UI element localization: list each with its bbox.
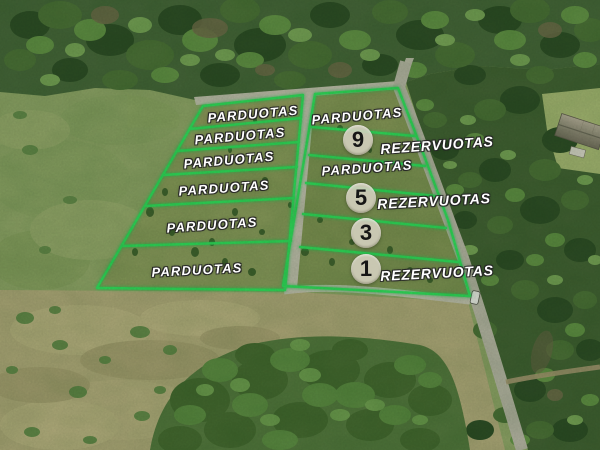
plot-label-sold: PARDUOTAS [321, 157, 413, 178]
plot-label-sold: PARDUOTAS [207, 103, 299, 126]
aerial-plot-map: PARDUOTAS PARDUOTAS PARDUOTAS PARDUOTAS … [0, 0, 600, 450]
plot-label-sold: PARDUOTAS [151, 260, 243, 280]
plot-label-sold: PARDUOTAS [194, 125, 286, 148]
plot-number-badge: 3 [351, 218, 381, 248]
plot-label-reserved: REZERVUOTAS [380, 133, 494, 157]
plot-label-reserved: REZERVUOTAS [377, 190, 491, 212]
plot-label-sold: PARDUOTAS [178, 177, 270, 198]
plot-label-sold: PARDUOTAS [311, 105, 403, 128]
plot-number-badge: 1 [351, 254, 381, 284]
plot-label-sold: PARDUOTAS [183, 149, 275, 172]
plot-labels-overlay: PARDUOTAS PARDUOTAS PARDUOTAS PARDUOTAS … [0, 0, 600, 450]
plot-label-reserved: REZERVUOTAS [380, 262, 494, 284]
plot-label-sold: PARDUOTAS [166, 214, 258, 235]
plot-number-badge: 5 [346, 183, 376, 213]
plot-number-badge: 9 [343, 125, 373, 155]
